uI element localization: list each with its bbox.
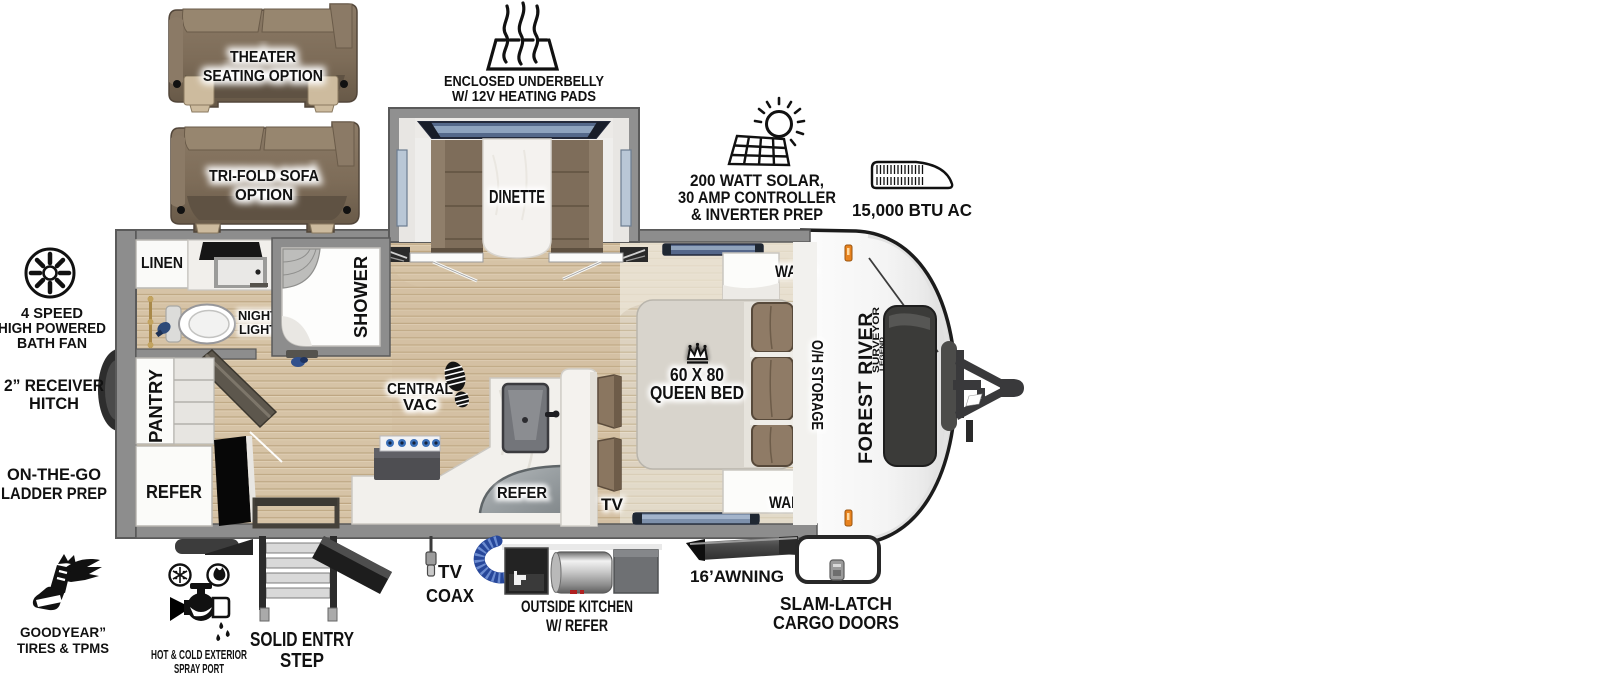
svg-text:VAC: VAC xyxy=(403,397,437,414)
svg-text:TIRES & TPMS: TIRES & TPMS xyxy=(17,640,109,656)
svg-text:PANTRY: PANTRY xyxy=(146,369,166,443)
svg-text:2” RECEIVER: 2” RECEIVER xyxy=(4,376,104,395)
svg-text:REFER: REFER xyxy=(146,482,202,502)
svg-text:OUTSIDE KITCHEN: OUTSIDE KITCHEN xyxy=(521,598,633,616)
svg-text:THEATER: THEATER xyxy=(230,49,296,66)
svg-text:& INVERTER PREP: & INVERTER PREP xyxy=(691,206,823,224)
svg-text:W/ REFER: W/ REFER xyxy=(546,617,608,635)
svg-text:STEP: STEP xyxy=(280,650,324,672)
svg-text:QUEEN BED: QUEEN BED xyxy=(650,382,744,403)
svg-text:SEATING OPTION: SEATING OPTION xyxy=(203,68,323,85)
svg-text:TRI-FOLD SOFA: TRI-FOLD SOFA xyxy=(209,168,319,185)
svg-text:30 AMP CONTROLLER: 30 AMP CONTROLLER xyxy=(678,189,836,207)
svg-text:15,000 BTU AC: 15,000 BTU AC xyxy=(852,200,972,220)
svg-text:HIGH POWERED: HIGH POWERED xyxy=(0,321,106,337)
svg-text:COAX: COAX xyxy=(426,586,474,606)
svg-text:SOLID ENTRY: SOLID ENTRY xyxy=(250,629,355,651)
svg-text:200 WATT SOLAR,: 200 WATT SOLAR, xyxy=(690,172,824,190)
svg-text:DINETTE: DINETTE xyxy=(489,187,545,207)
svg-text:O/H STORAGE: O/H STORAGE xyxy=(808,340,825,430)
svg-text:TV: TV xyxy=(601,495,624,514)
svg-text:LINEN: LINEN xyxy=(141,255,183,272)
svg-text:SLAM-LATCH: SLAM-LATCH xyxy=(780,593,892,614)
svg-text:W/ 12V HEATING PADS: W/ 12V HEATING PADS xyxy=(452,88,596,105)
svg-text:CARGO DOORS: CARGO DOORS xyxy=(773,612,899,633)
svg-text:SPRAY PORT: SPRAY PORT xyxy=(174,662,224,676)
svg-text:CENTRAL: CENTRAL xyxy=(387,381,453,398)
svg-text:TV: TV xyxy=(438,562,462,582)
svg-text:16’AWNING: 16’AWNING xyxy=(690,567,784,586)
svg-text:BATH FAN: BATH FAN xyxy=(17,336,87,352)
svg-text:ON-THE-GO: ON-THE-GO xyxy=(7,465,101,484)
svg-text:LEGEND: LEGEND xyxy=(879,337,886,371)
svg-text:4 SPEED: 4 SPEED xyxy=(21,306,83,322)
svg-text:LADDER PREP: LADDER PREP xyxy=(1,484,107,503)
svg-text:HOT & COLD EXTERIOR: HOT & COLD EXTERIOR xyxy=(151,648,247,662)
svg-text:GOODYEAR”: GOODYEAR” xyxy=(20,624,106,640)
svg-text:SHOWER: SHOWER xyxy=(351,256,371,338)
svg-text:REFER: REFER xyxy=(497,485,547,502)
svg-text:HITCH: HITCH xyxy=(29,394,79,413)
svg-text:OPTION: OPTION xyxy=(235,187,293,204)
